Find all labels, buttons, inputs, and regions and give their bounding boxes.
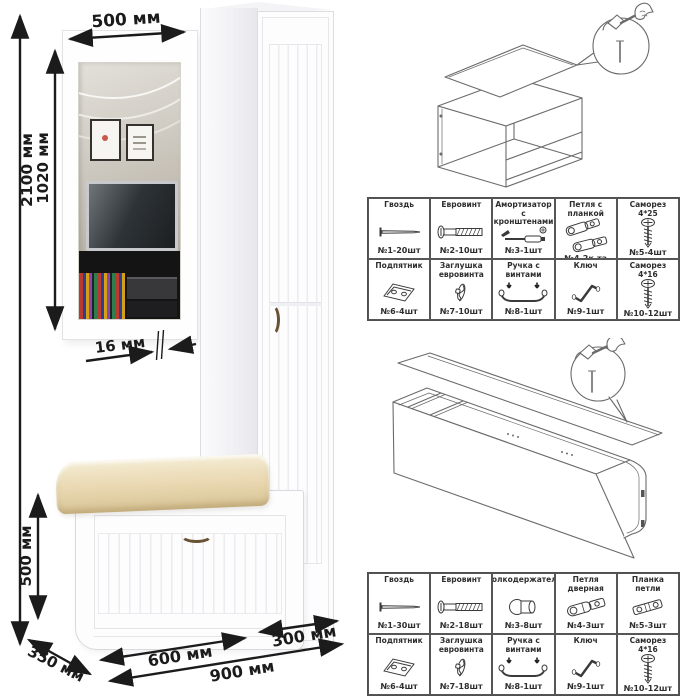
thickness-tick [162, 330, 164, 359]
foot-plate-icon [381, 279, 417, 307]
hardware-cell: Гвоздь№1-30шт [368, 573, 430, 634]
foot-plate-icon [381, 654, 417, 682]
part-quantity: №6-4шт [380, 307, 417, 319]
part-name: Ручка с винтами [493, 260, 553, 279]
part-name: Полкодержатель [492, 574, 554, 593]
screw-cap-icon [452, 279, 470, 307]
thickness-tick [157, 331, 159, 360]
part-quantity: №8-1шт [505, 682, 542, 694]
part-name: Подпятник [374, 260, 423, 279]
hardware-cell: Гвоздь№1-20шт [368, 198, 430, 259]
part-name: Ручка с винтами [493, 635, 553, 654]
hardware-cell: Евровинт№2-10шт [430, 198, 492, 259]
hardware-cell: Ключ№9-1шт [555, 259, 617, 320]
part-name: Евровинт [440, 199, 482, 218]
part-quantity: №5-3шт [629, 621, 666, 633]
part-name: Саморез 4*16 [618, 260, 678, 279]
part-quantity: №6-4шт [380, 682, 417, 694]
hardware-cell: Подпятник№6-4шт [368, 634, 430, 695]
assembly-diagram-cabinet [378, 338, 680, 560]
hammer-and-nail-icon [593, 3, 653, 74]
hardware-cell: Амортизатор с кронштенами№3-1шт [492, 198, 554, 259]
screw-icon [640, 654, 656, 684]
assembly-diagram-bench [393, 2, 680, 188]
part-quantity: №8-1шт [505, 307, 542, 319]
cabinet-carcass-drawing [393, 388, 646, 558]
thickness-arrow-right [170, 344, 196, 349]
hardware-table-cabinet: Гвоздь№1-30штЕвровинт№2-18штПолкодержате… [367, 572, 680, 696]
gas-lift-icon [497, 226, 549, 246]
part-name: Саморез 4*16 [618, 635, 678, 654]
hardware-cell: Заглушка евровинта№7-18шт [430, 634, 492, 695]
part-name: Заглушка евровинта [431, 635, 491, 654]
part-quantity: №9-1шт [567, 307, 604, 319]
hardware-cell: Саморез 4*25№5-4шт [617, 198, 679, 259]
hardware-cell: Полкодержатель№3-8шт [492, 573, 554, 634]
part-name: Подпятник [374, 635, 423, 654]
handle-icon [498, 279, 548, 307]
dim-label-mirror-height: 1020 мм [34, 132, 52, 204]
hardware-cell: Ручка с винтами№8-1шт [492, 259, 554, 320]
part-quantity: №7-10шт [440, 307, 483, 319]
bench-carcass-drawing [438, 78, 582, 187]
part-name: Гвоздь [383, 574, 415, 593]
hardware-cell: Планка петли№5-3шт [617, 573, 679, 634]
hardware-cell: Подпятник№6-4шт [368, 259, 430, 320]
hardware-cell: Евровинт№2-18шт [430, 573, 492, 634]
dim-label-bench-height: 500 мм [17, 525, 35, 586]
screw-cap-icon [452, 654, 470, 682]
nail-icon [376, 218, 422, 246]
part-quantity: №5-4шт [629, 248, 666, 259]
part-quantity: №1-30шт [378, 621, 421, 633]
hardware-cell: Саморез 4*16№10-12шт [617, 634, 679, 695]
euro-screw-icon [437, 593, 485, 621]
part-quantity: №9-1шт [567, 682, 604, 694]
hardware-cell: Ручка с винтами№8-1шт [492, 634, 554, 695]
part-name: Заглушка евровинта [431, 260, 491, 279]
back-panel-drawing [445, 45, 577, 97]
mirror-width-arrow [70, 32, 184, 39]
hardware-cell: Ключ№9-1шт [555, 634, 617, 695]
part-quantity: №7-18шт [440, 682, 483, 694]
part-quantity: №10-12шт [624, 684, 672, 695]
hand-icon [607, 338, 625, 351]
part-name: Петля с планкой [556, 199, 616, 218]
part-quantity: №2-10шт [440, 246, 483, 258]
part-name: Планка петли [618, 574, 678, 593]
part-quantity: №4-3шт [567, 621, 604, 633]
screw-icon [640, 218, 656, 248]
screw-icon [640, 279, 656, 309]
hardware-table-bench: Гвоздь№1-20штЕвровинт№2-10штАмортизатор … [367, 197, 680, 321]
shelf-pin-icon [508, 593, 538, 621]
hinge-with-plate-icon [561, 218, 611, 254]
hardware-cell: Петля дверная№4-3шт [555, 573, 617, 634]
part-name: Евровинт [440, 574, 482, 593]
part-name: Гвоздь [383, 199, 415, 218]
nail-icon [376, 593, 422, 621]
part-name: Саморез 4*25 [618, 199, 678, 218]
hardware-cell: Петля с планкой№4-2к-та [555, 198, 617, 259]
hinge-icon [563, 593, 609, 621]
part-name: Ключ [573, 260, 599, 279]
hardware-cell: Саморез 4*16№10-12шт [617, 259, 679, 320]
part-quantity: №3-8шт [505, 621, 542, 633]
part-quantity: №1-20шт [378, 246, 421, 258]
part-quantity: №3-1шт [505, 246, 542, 258]
part-name: Амортизатор с кронштенами [493, 199, 555, 226]
hinge-plate-icon [628, 593, 668, 621]
euro-screw-icon [437, 218, 485, 246]
hex-key-icon [571, 654, 601, 682]
part-quantity: №2-18шт [440, 621, 483, 633]
handle-icon [498, 654, 548, 682]
part-quantity: №10-12шт [624, 309, 672, 320]
part-name: Ключ [573, 635, 599, 654]
hardware-cell: Заглушка евровинта№7-10шт [430, 259, 492, 320]
furniture-assembly-sheet: 500 мм 2100 мм 1020 мм 16 мм 500 мм 350 … [0, 0, 680, 700]
hex-key-icon [571, 279, 601, 307]
part-name: Петля дверная [556, 574, 616, 593]
